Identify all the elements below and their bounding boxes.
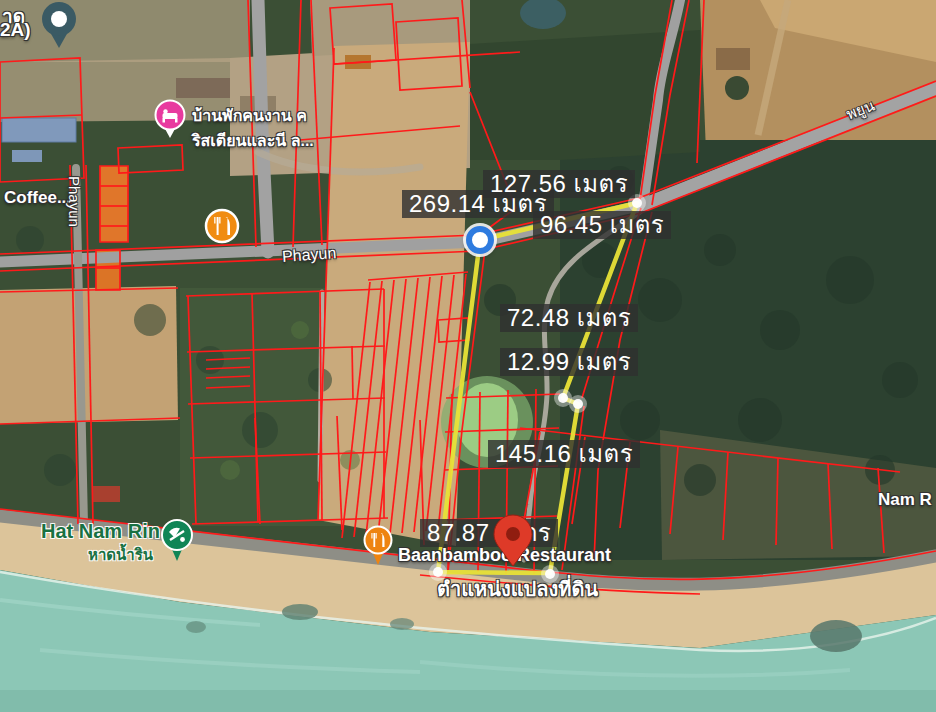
restaurant-pin-icon (360, 524, 396, 570)
map-pin-icon (493, 514, 533, 566)
map-canvas[interactable]: 269.14 เมตร 127.56 เมตร 96.45 เมตร 72.48… (0, 0, 936, 712)
poi-marker-beach[interactable] (158, 518, 196, 570)
place-pin-icon (37, 0, 81, 50)
poi-label-lodging-line2: ริสเตียนและนี ล... (192, 128, 314, 153)
road-label-phayun: Phayun (281, 244, 336, 266)
poi-label-coffee[interactable]: Coffee... (4, 188, 71, 208)
beach-pin-icon (158, 518, 196, 566)
measurement-87-87: 87.87 เมตร (420, 519, 558, 547)
restaurant-utensils-icon (202, 206, 242, 246)
road-label-phayun-vertical: Phayun (66, 176, 83, 227)
measurement-127-56: 127.56 เมตร (483, 170, 635, 198)
poi-marker-generic[interactable] (37, 0, 81, 54)
lodging-bed-icon (152, 98, 188, 142)
poi-marker-baanbamboo[interactable] (360, 524, 396, 574)
parcel-vertex-marker[interactable] (466, 226, 494, 254)
measurement-12-99: 12.99 เมตร (500, 348, 638, 376)
poi-label-hat-nam-rin-th: หาดน้ำริน (88, 543, 153, 567)
poi-label-lodging-line1: บ้านพักคนงาน ค (192, 103, 314, 128)
poi-label-partial-bottom: 2A) (0, 19, 31, 41)
measurement-72-48: 72.48 เมตร (500, 304, 638, 332)
terrain-layer (0, 0, 936, 712)
measurement-145-16: 145.16 เมตร (488, 440, 640, 468)
poi-marker-restaurant-north[interactable] (202, 206, 242, 250)
poi-marker-lodging[interactable] (152, 98, 188, 146)
satellite-imagery (0, 0, 936, 712)
parcel-location-pin[interactable] (493, 514, 533, 570)
poi-label-lodging[interactable]: บ้านพักคนงาน ค ริสเตียนและนี ล... (192, 103, 314, 153)
poi-label-nam-rin-partial: Nam R (878, 490, 932, 510)
measurement-96-45: 96.45 เมตร (533, 211, 671, 239)
poi-label-hat-nam-rin-en[interactable]: Hat Nam Rin (41, 520, 160, 543)
parcel-pin-label: ตำแหน่งแปลงที่ดิน (437, 573, 598, 605)
